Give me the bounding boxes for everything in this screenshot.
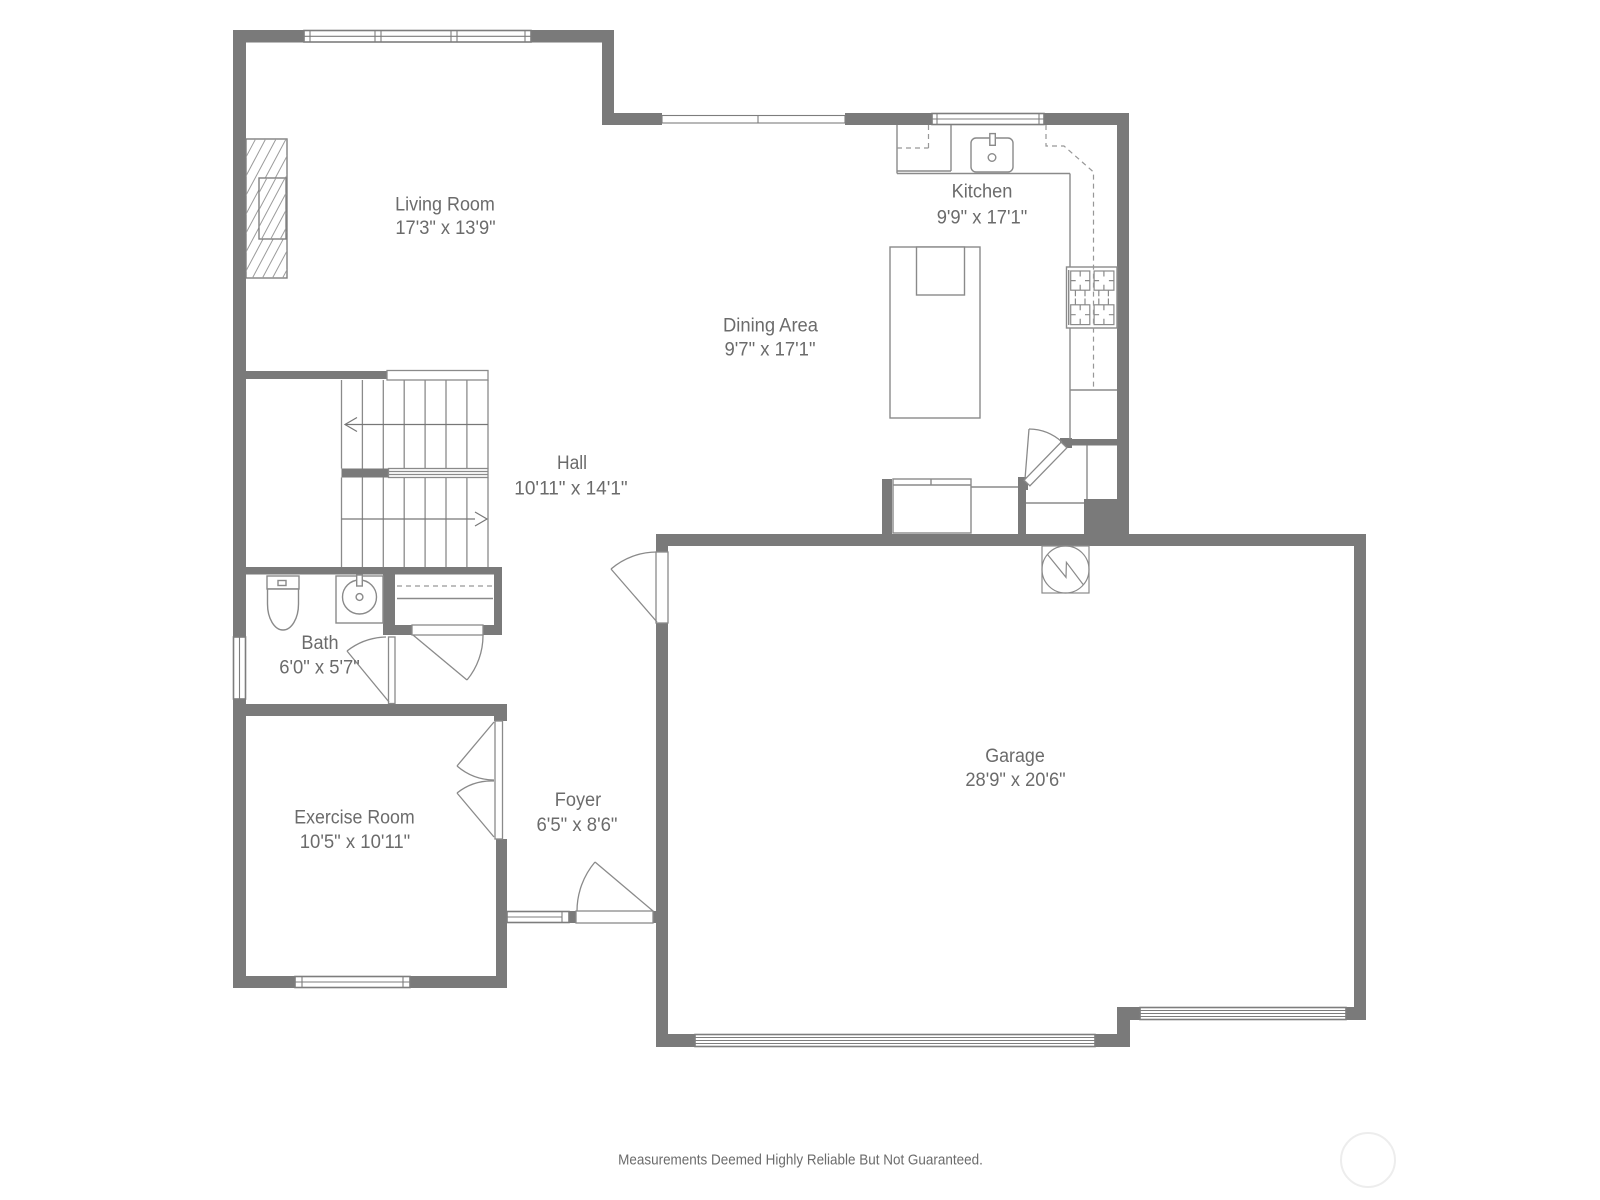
svg-text:Garage: Garage xyxy=(985,746,1045,767)
svg-text:Living Room: Living Room xyxy=(395,195,495,216)
svg-text:6'5" x 8'6": 6'5" x 8'6" xyxy=(537,815,618,836)
svg-text:Kitchen: Kitchen xyxy=(952,182,1013,203)
svg-text:Dining Area: Dining Area xyxy=(723,316,818,337)
svg-text:6'0" x 5'7": 6'0" x 5'7" xyxy=(279,658,360,679)
svg-text:9'7" x 17'1": 9'7" x 17'1" xyxy=(725,340,816,361)
svg-text:17'3" x 13'9": 17'3" x 13'9" xyxy=(395,218,495,239)
svg-text:Measurements Deemed Highly Rel: Measurements Deemed Highly Reliable But … xyxy=(618,1152,983,1169)
svg-text:9'9" x 17'1": 9'9" x 17'1" xyxy=(937,208,1028,229)
svg-text:10'5" x 10'11": 10'5" x 10'11" xyxy=(300,832,411,853)
svg-text:Hall: Hall xyxy=(557,453,587,474)
svg-text:Exercise Room: Exercise Room xyxy=(294,808,415,829)
svg-text:10'11" x 14'1": 10'11" x 14'1" xyxy=(514,479,627,500)
svg-text:Bath: Bath xyxy=(301,633,338,654)
svg-text:Foyer: Foyer xyxy=(555,790,602,811)
svg-text:28'9" x 20'6": 28'9" x 20'6" xyxy=(965,770,1065,791)
